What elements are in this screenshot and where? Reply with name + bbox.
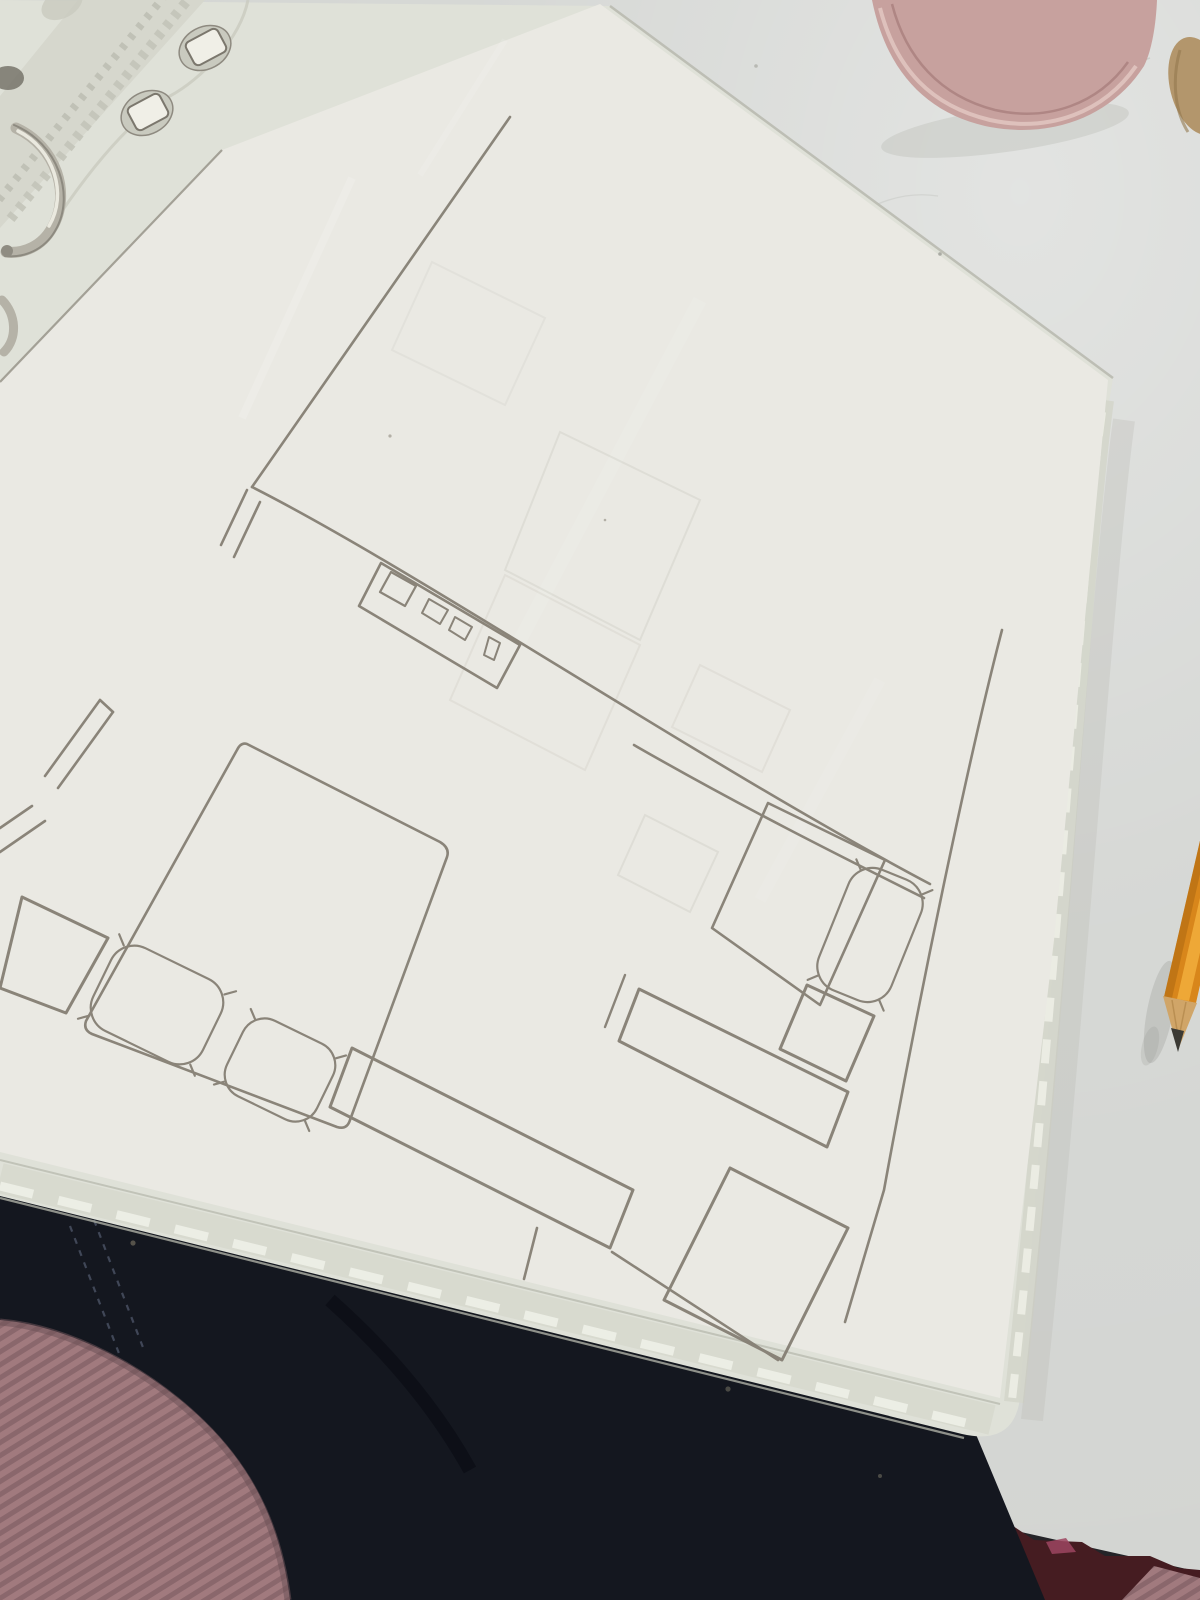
photo-scene xyxy=(0,0,1200,1600)
metal-ring-end xyxy=(1,245,13,257)
